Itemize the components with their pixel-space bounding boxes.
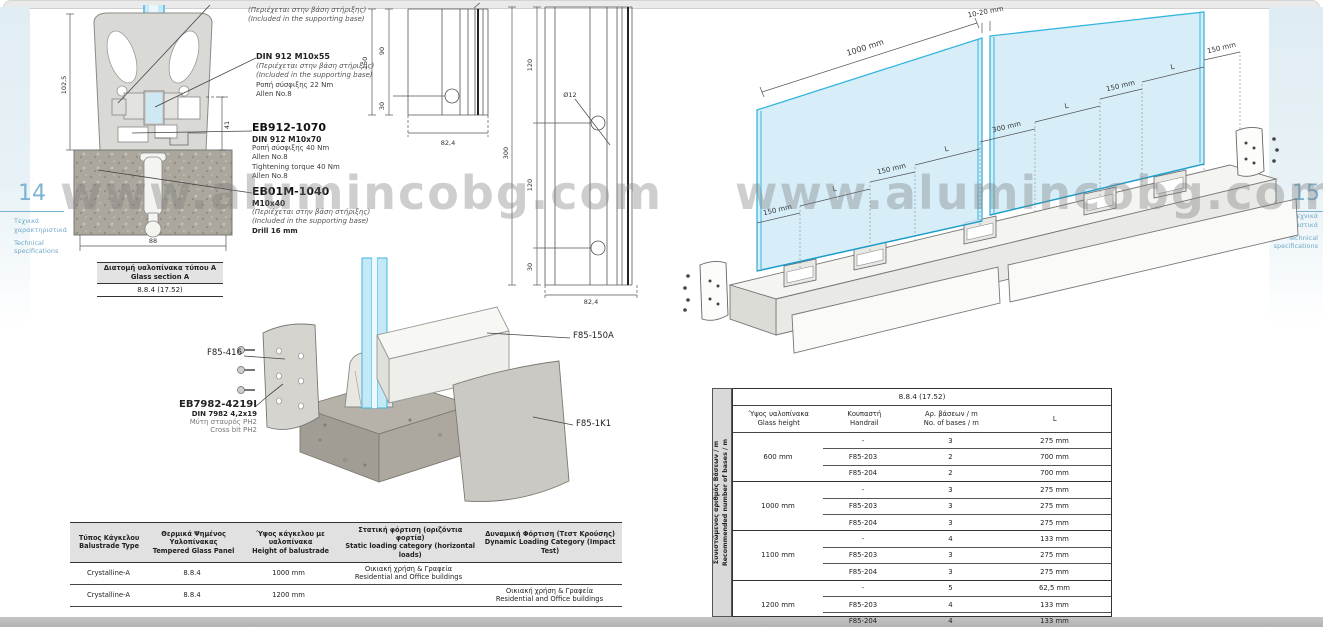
dim-hole-diameter: Ø12 [563, 91, 576, 99]
table-row: Crystalline-A 8.8.4 1000 mm Οικιακή χρήσ… [70, 563, 622, 585]
col-header-bases: Αρ. βάσεων / m No. of bases / m [904, 406, 999, 432]
dynamic-load: Οικιακή χρήση & Γραφεία Residential and … [477, 585, 622, 606]
glass-section-value: 8.8.4 (17.52) [97, 284, 223, 297]
static-load [340, 585, 477, 606]
table-row: F85-2033275 mm [823, 547, 1111, 563]
col-header-glass-height: Ύψος υαλοπίνακα Glass height [733, 406, 825, 432]
table-row: F85-2034133 mm [823, 596, 1111, 612]
L-value: 133 mm [998, 535, 1111, 543]
bases-table: Συνιστώμενος αριθμός Βάσεων / m Recommen… [712, 388, 1113, 617]
dim-gap: 10-20 mm [967, 5, 1004, 20]
side-label-gr: Συνιστώμενος αριθμός Βάσεων / m [712, 388, 721, 617]
handrail: F85-203 [823, 502, 903, 510]
height: 1000 mm [237, 563, 340, 584]
base-profile-section [94, 13, 212, 150]
watermark-left: www.alumincobg.com [60, 166, 663, 220]
L-value: 275 mm [998, 502, 1111, 510]
L-value: 700 mm [998, 453, 1111, 461]
col-header: Δυναμική Φόρτιση (Τεστ Κρούσης) Dynamic … [478, 523, 622, 562]
dimension-lines [368, 9, 488, 137]
L-value: 133 mm [998, 601, 1111, 609]
bases-count: 4 [903, 617, 998, 625]
table-row: F85-2044133 mm [823, 612, 1111, 627]
label-eb7982-block: EB7982-4219I DIN 7982 4,2x19 Μύτη σταυρό… [140, 399, 257, 434]
dim-82-4: 82,4 [441, 139, 455, 147]
handrail: - [823, 437, 903, 445]
bases-count: 3 [903, 519, 998, 527]
bases-count: 4 [903, 601, 998, 609]
hdr-gr: Δυναμική Φόρτιση (Τεστ Κρούσης) [480, 530, 620, 538]
part-spec: DIN 912 M10x70 [252, 135, 340, 145]
watermark-right: www.alumincobg.com [735, 166, 1323, 220]
dim-90: 90 [378, 47, 386, 55]
hdr-en: Handrail [825, 419, 905, 428]
glass-height: 1000 mm [733, 482, 823, 530]
callout-din912-m10x55: DIN 912 M10x55 (Περιέχεται στην βάση στή… [256, 52, 374, 99]
bases-table-main: 8.8.4 (17.52) Ύψος υαλοπίνακα Glass heig… [732, 388, 1112, 617]
static-gr: Οικιακή χρήση & Γραφεία [340, 565, 477, 573]
table-group-600: 600 mm -3275 mm F85-2032700 mm F85-20427… [733, 433, 1111, 482]
dynamic-load [477, 563, 622, 584]
table-row: -3275 mm [823, 482, 1111, 497]
L-value: 275 mm [998, 486, 1111, 494]
L-value: 275 mm [998, 437, 1111, 445]
dim-120-top: 120 [526, 59, 534, 71]
profile-lines [393, 3, 488, 115]
table-group-1000: 1000 mm -3275 mm F85-2033275 mm F85-2043… [733, 482, 1111, 531]
handrail: F85-203 [823, 453, 903, 461]
left-end-cap [683, 261, 728, 320]
glass-height: 1100 mm [733, 531, 823, 579]
glass-height: 600 mm [733, 433, 823, 481]
static-en: Residential and Office buildings [340, 573, 477, 581]
hdr-en: No. of bases / m [904, 419, 999, 428]
height: 1200 mm [237, 585, 340, 606]
handrail: - [823, 486, 903, 494]
bases-count: 5 [903, 584, 998, 592]
col-header: Τύπος Κάγκελου Balustrade Type [70, 523, 148, 562]
col-header: Στατική φόρτιση (οριζόντια φορτία) Stati… [342, 523, 478, 562]
part-spec: DIN 7982 4,2x19 [140, 410, 257, 418]
table-row: F85-2032700 mm [823, 448, 1111, 464]
handrail: F85-203 [823, 551, 903, 559]
hdr-en: Tempered Glass Panel [150, 547, 237, 555]
dim-30: 30 [378, 102, 386, 110]
hdr-en: Glass height [733, 419, 825, 428]
part-code: EB912-1070 [252, 122, 340, 135]
bases-count: 3 [903, 551, 998, 559]
dynamic-gr: Οικιακή χρήση & Γραφεία [477, 587, 622, 595]
table-row: -3275 mm [823, 433, 1111, 448]
table-row: F85-2043275 mm [823, 514, 1111, 530]
handrail: - [823, 584, 903, 592]
handrail: F85-203 [823, 601, 903, 609]
hdr-gr: Αρ. βάσεων / m [904, 410, 999, 419]
handrail: F85-204 [823, 519, 903, 527]
balustrade-type: Crystalline-A [70, 585, 147, 606]
table-row: F85-2043275 mm [823, 563, 1111, 579]
glass-section-header: Διατομή υαλοπίνακα τύπου A Glass section… [97, 262, 223, 284]
col-header-handrail: Κουπαστή Handrail [825, 406, 905, 432]
glass-panel: 8.8.4 [147, 585, 237, 606]
profile-lines [540, 7, 632, 285]
table-row: Crystalline-A 8.8.4 1200 mm Οικιακή χρήσ… [70, 585, 622, 607]
allen-gr: Allen No.8 [252, 153, 340, 162]
table-group-1100: 1100 mm -4133 mm F85-2033275 mm F85-2043… [733, 531, 1111, 580]
bases-table-side-label: Συνιστώμενος αριθμός Βάσεων / m Recommen… [712, 388, 732, 617]
static-load: Οικιακή χρήση & Γραφεία Residential and … [340, 563, 477, 584]
page-number-rule [0, 211, 64, 212]
callout-gr: (Περιέχεται στην βάση στήριξης) [256, 62, 374, 71]
hdr-en: Height of balustrade [241, 547, 340, 555]
col-header: Ύψος κάγκελου με υαλοπίνακα Height of ba… [239, 523, 342, 562]
col-header-L: L [999, 406, 1111, 432]
side-label-en: Recommended number of bases / m [721, 388, 730, 617]
dim-41: 41 [223, 121, 231, 129]
L-value: 62,5 mm [998, 584, 1111, 592]
table-row: -4133 mm [823, 531, 1111, 546]
table-group-1200: 1200 mm -562,5 mm F85-2034133 mm F85-204… [733, 581, 1111, 627]
left-page-edge-band [0, 7, 30, 327]
end-cap-plate [263, 324, 319, 429]
dynamic-en: Residential and Office buildings [477, 595, 622, 603]
table-row: -562,5 mm [823, 581, 1111, 596]
dim-88: 88 [149, 237, 157, 245]
label-f85-1k1: F85-1K1 [576, 419, 611, 429]
callout-allen: Allen No.8 [256, 90, 374, 99]
callout-title: DIN 912 M10x55 [256, 52, 374, 62]
torque-gr: Ροπή σύσφιξης 40 Nm [252, 144, 340, 153]
exploded-view [225, 255, 670, 530]
load-table-header: Τύπος Κάγκελου Balustrade Type Θερμικά Ψ… [70, 522, 622, 563]
bases-count: 2 [903, 469, 998, 477]
drill-note: Drill 16 mm [252, 227, 370, 236]
handrail: F85-204 [823, 617, 903, 625]
hdr-gr: Τύπος Κάγκελου [72, 534, 146, 542]
glass-section-title-gr: Διατομή υαλοπίνακα τύπου A [99, 264, 221, 273]
table-row: F85-2033275 mm [823, 498, 1111, 514]
handrail: F85-204 [823, 568, 903, 576]
callout-top-en: (Included in the supporting base) [248, 15, 366, 24]
hdr-gr: Στατική φόρτιση (οριζόντια φορτία) [344, 526, 476, 542]
part-code: EB7982-4219I [140, 399, 257, 410]
bases-count: 3 [903, 486, 998, 494]
hdr-gr: Ύψος κάγκελου με υαλοπίνακα [241, 530, 340, 546]
glass-section-box: Διατομή υαλοπίνακα τύπου A Glass section… [97, 262, 223, 297]
table-row: F85-2042700 mm [823, 465, 1111, 481]
callout-torque: Ροπή σύσφιξης 22 Nm [256, 81, 374, 90]
load-table: Τύπος Κάγκελου Balustrade Type Θερμικά Ψ… [70, 522, 622, 607]
callout-top-gr: (Περιέχεται στην βάση στήριξης) [248, 6, 366, 15]
L-value: 133 mm [998, 617, 1111, 625]
callout-en: (Included in the supporting base) [256, 71, 374, 80]
L-value: 275 mm [998, 519, 1111, 527]
L-value: 275 mm [998, 568, 1111, 576]
hdr-gr: L [999, 415, 1111, 424]
bases-table-title: 8.8.4 (17.52) [733, 389, 1111, 406]
dim-300: 300 [502, 147, 510, 159]
side-cover-f85-1k1 [453, 361, 569, 502]
L-value: 275 mm [998, 551, 1111, 559]
page-bottom-edge [0, 617, 1323, 627]
callout-top-partial: (Περιέχεται στην βάση στήριξης) (Include… [248, 6, 366, 24]
glass-height: 1200 mm [733, 581, 823, 627]
glass-panel: 8.8.4 [147, 563, 237, 584]
handrail: F85-204 [823, 469, 903, 477]
bases-count: 4 [903, 535, 998, 543]
hdr-en: Balustrade Type [72, 542, 146, 550]
glass-section-title-en: Glass section A [99, 273, 221, 282]
bases-table-headers: Ύψος υαλοπίνακα Glass height Κουπαστή Ha… [733, 406, 1111, 433]
bit-en: Cross bit PH2 [140, 426, 257, 434]
hdr-gr: Ύψος υαλοπίνακα [733, 410, 825, 419]
L-value: 700 mm [998, 469, 1111, 477]
balustrade-type: Crystalline-A [70, 563, 147, 584]
label-f85-416: F85-416 [196, 348, 242, 358]
ladder-label: 150 mm [1206, 41, 1236, 56]
bases-count: 2 [903, 453, 998, 461]
hdr-gr: Κουπαστή [825, 410, 905, 419]
catalog-spread: 14 Τεχνικά χαρακτηριστικά Technical spec… [0, 0, 1323, 627]
dim-102-5: 102,5 [60, 76, 68, 95]
bases-count: 3 [903, 502, 998, 510]
bases-count: 3 [903, 568, 998, 576]
hdr-gr: Θερμικά Ψημένος Υαλοπίνακας [150, 530, 237, 546]
bases-count: 3 [903, 437, 998, 445]
label-f85-150a: F85-150A [573, 331, 614, 341]
hdr-en: Dynamic Loading Category (Impact Test) [480, 538, 620, 554]
bit-gr: Μύτη σταυρός PH2 [140, 418, 257, 426]
handrail: - [823, 535, 903, 543]
hdr-en: Static loading category (horizontal load… [344, 542, 476, 558]
col-header: Θερμικά Ψημένος Υαλοπίνακας Tempered Gla… [148, 523, 239, 562]
